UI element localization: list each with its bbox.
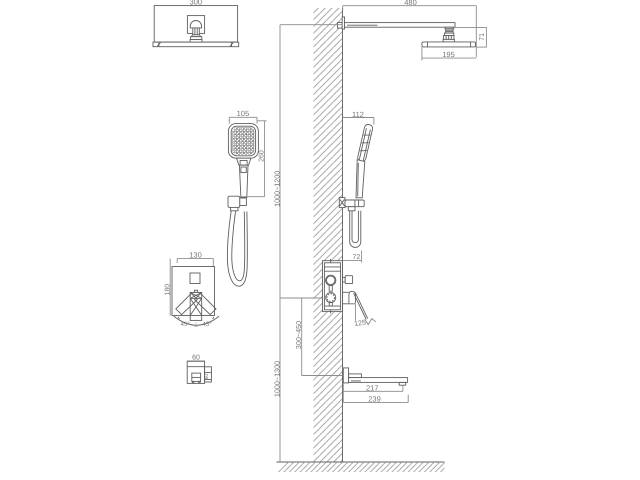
svg-text:71: 71 xyxy=(479,33,486,41)
svg-text:72: 72 xyxy=(353,254,361,261)
svg-text:1000~1300: 1000~1300 xyxy=(273,361,282,397)
svg-text:⊥: ⊥ xyxy=(194,322,199,328)
svg-text:180: 180 xyxy=(165,284,172,296)
svg-text:125: 125 xyxy=(354,319,367,328)
svg-text:60: 60 xyxy=(204,374,210,380)
svg-text:300~450: 300~450 xyxy=(294,321,303,349)
svg-text:105: 105 xyxy=(237,109,250,118)
svg-text:1000~1200: 1000~1200 xyxy=(273,171,282,207)
svg-text:45°: 45° xyxy=(202,321,212,328)
svg-text:195: 195 xyxy=(442,50,455,59)
svg-text:260: 260 xyxy=(259,150,266,162)
svg-text:45°: 45° xyxy=(181,321,191,328)
